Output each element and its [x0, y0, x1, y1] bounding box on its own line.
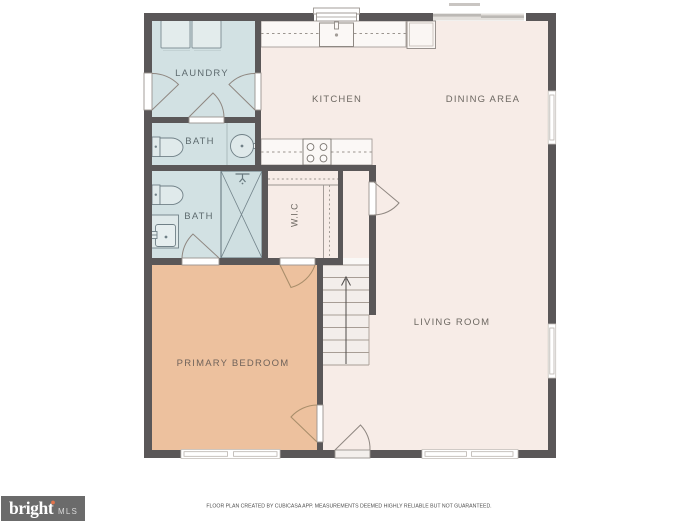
svg-text:KITCHEN: KITCHEN [312, 94, 362, 105]
svg-text:LIVING ROOM: LIVING ROOM [414, 317, 491, 328]
svg-text:BATH: BATH [185, 136, 214, 147]
svg-text:MLS: MLS [58, 507, 78, 516]
svg-text:FLOOR PLAN CREATED BY CUBICASA: FLOOR PLAN CREATED BY CUBICASA APP. MEAS… [206, 504, 491, 510]
svg-text:BATH: BATH [184, 211, 213, 222]
svg-text:bright: bright [9, 498, 54, 518]
svg-text:PRIMARY BEDROOM: PRIMARY BEDROOM [177, 358, 290, 369]
svg-text:LAUNDRY: LAUNDRY [175, 68, 229, 79]
svg-text:W.I.C: W.I.C [290, 203, 300, 227]
svg-text:DINING AREA: DINING AREA [446, 94, 520, 105]
